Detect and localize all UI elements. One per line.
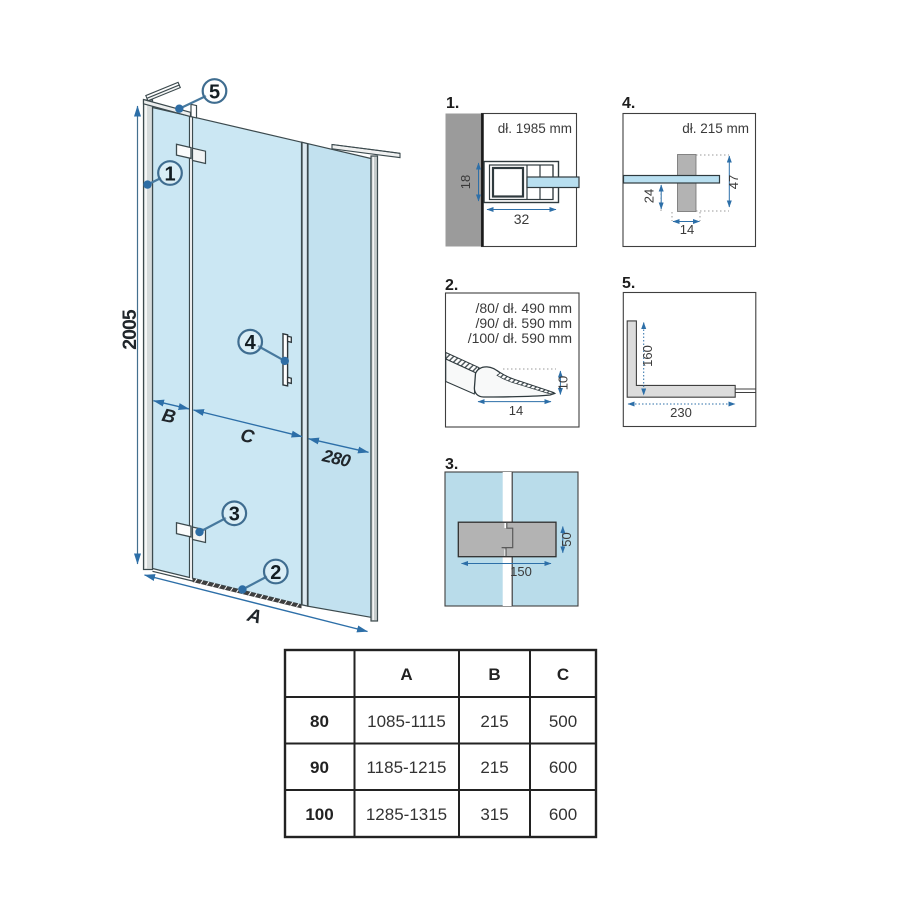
svg-text:5.: 5. (622, 275, 635, 292)
svg-text:1: 1 (164, 163, 175, 185)
svg-text:14: 14 (509, 403, 523, 418)
svg-text:5: 5 (209, 81, 220, 103)
svg-text:/90/ dł. 590 mm: /90/ dł. 590 mm (476, 315, 573, 331)
svg-text:/100/ dł. 590 mm: /100/ dł. 590 mm (468, 330, 572, 346)
svg-text:80: 80 (310, 712, 329, 731)
svg-text:150: 150 (510, 564, 532, 579)
svg-text:10: 10 (556, 376, 571, 390)
svg-text:215: 215 (480, 712, 508, 731)
svg-text:A: A (400, 665, 412, 684)
svg-text:dł. 1985 mm: dł. 1985 mm (498, 121, 572, 136)
svg-text:600: 600 (549, 758, 577, 777)
svg-text:3: 3 (229, 504, 240, 526)
svg-text:4.: 4. (622, 95, 635, 112)
svg-text:14: 14 (680, 222, 694, 237)
svg-text:dł. 215 mm: dł. 215 mm (682, 121, 749, 136)
svg-text:100: 100 (305, 805, 333, 824)
svg-text:3.: 3. (445, 456, 458, 473)
svg-text:215: 215 (480, 758, 508, 777)
svg-text:1285-1315: 1285-1315 (366, 805, 447, 824)
svg-text:315: 315 (480, 805, 508, 824)
svg-text:1.: 1. (446, 95, 459, 112)
svg-text:C: C (557, 665, 569, 684)
svg-text:50: 50 (559, 532, 574, 546)
svg-text:2005: 2005 (119, 309, 141, 350)
svg-text:2: 2 (270, 562, 281, 584)
svg-text:18: 18 (458, 175, 473, 189)
svg-text:32: 32 (514, 211, 530, 227)
svg-text:24: 24 (642, 189, 657, 203)
svg-text:90: 90 (310, 758, 329, 777)
svg-text:600: 600 (549, 805, 577, 824)
svg-text:2.: 2. (445, 277, 458, 294)
svg-text:/80/ dł. 490 mm: /80/ dł. 490 mm (476, 300, 573, 316)
svg-text:4: 4 (245, 332, 257, 354)
svg-text:B: B (488, 665, 500, 684)
svg-text:500: 500 (549, 712, 577, 731)
svg-text:47: 47 (726, 175, 741, 189)
svg-text:230: 230 (670, 405, 692, 420)
svg-text:160: 160 (640, 345, 655, 367)
svg-text:1185-1215: 1185-1215 (366, 758, 446, 777)
svg-text:1085-1115: 1085-1115 (367, 712, 446, 731)
